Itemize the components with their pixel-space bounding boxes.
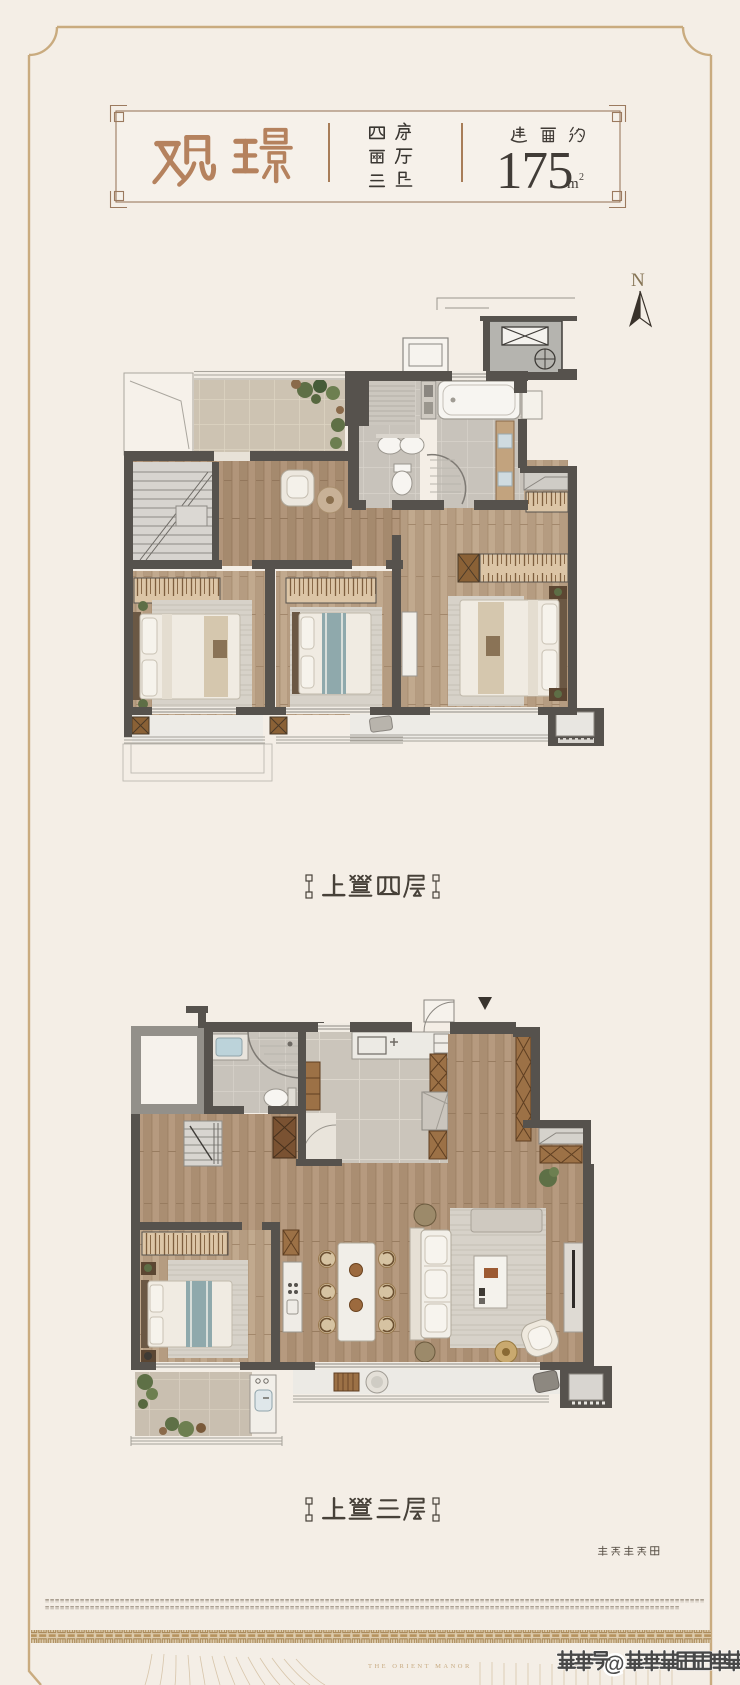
svg-text:2: 2	[579, 172, 584, 183]
svg-text:@: @	[604, 1653, 624, 1676]
svg-text:THE ORIENT MANOR: THE ORIENT MANOR	[368, 1663, 472, 1670]
svg-text:m: m	[567, 176, 579, 192]
svg-text:175: 175	[496, 142, 573, 200]
svg-text:N: N	[631, 270, 645, 291]
